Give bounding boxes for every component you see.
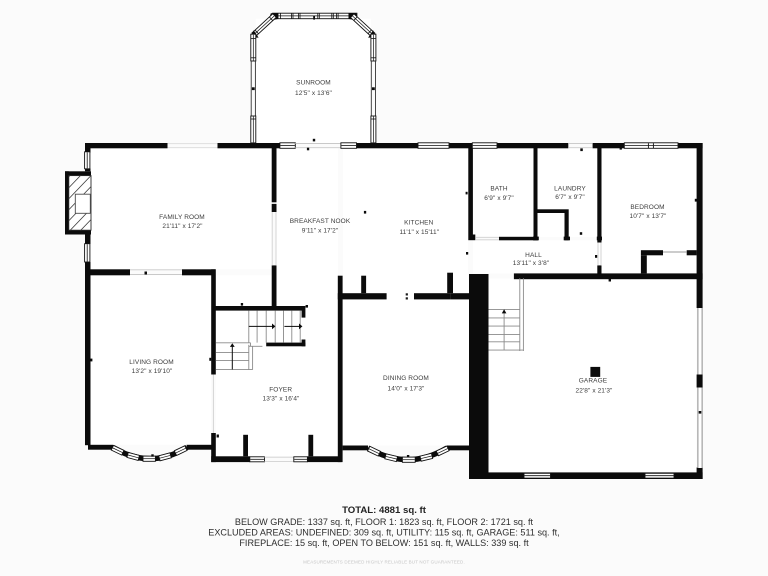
svg-text:DINING ROOM: DINING ROOM [383,375,429,382]
svg-text:FOYER: FOYER [269,387,292,394]
svg-text:TOTAL: 4881 sq. ft: TOTAL: 4881 sq. ft [342,505,427,516]
svg-text:GARAGE: GARAGE [579,377,608,384]
svg-text:13'3" x 16'4": 13'3" x 16'4" [263,396,301,403]
svg-text:MEASUREMENTS DEEMED HIGHLY REL: MEASUREMENTS DEEMED HIGHLY RELIABLE BUT … [303,560,465,565]
svg-text:BEDROOM: BEDROOM [630,204,664,211]
svg-text:FAMILY ROOM: FAMILY ROOM [159,214,205,221]
svg-text:6'7" x 9'7": 6'7" x 9'7" [555,194,585,201]
svg-text:6'9" x 9'7": 6'9" x 9'7" [484,195,514,202]
svg-text:HALL: HALL [525,252,542,259]
svg-text:BATH: BATH [490,186,507,193]
svg-text:12'5" x 13'6": 12'5" x 13'6" [295,90,333,97]
svg-text:14'0" x 17'3": 14'0" x 17'3" [388,385,426,392]
svg-text:BELOW GRADE: 1337 sq. ft, FLOO: BELOW GRADE: 1337 sq. ft, FLOOR 1: 1823 … [235,517,534,527]
svg-text:LIVING ROOM: LIVING ROOM [129,359,173,366]
svg-text:FIREPLACE: 15 sq. ft, OPEN TO: FIREPLACE: 15 sq. ft, OPEN TO BELOW: 151… [239,538,529,548]
svg-text:LAUNDRY: LAUNDRY [554,186,586,193]
svg-text:SUNROOM: SUNROOM [296,80,331,87]
svg-text:21'11" x 17'2": 21'11" x 17'2" [162,223,203,230]
svg-text:KITCHEN: KITCHEN [404,220,433,227]
svg-text:10'7" x 13'7": 10'7" x 13'7" [630,213,668,220]
svg-text:11'1" x 15'11": 11'1" x 15'11" [399,229,439,236]
svg-text:9'11" x 17'2": 9'11" x 17'2" [302,228,339,235]
svg-text:BREAKFAST NOOK: BREAKFAST NOOK [290,218,351,225]
svg-text:EXCLUDED AREAS: UNDEFINED: 309: EXCLUDED AREAS: UNDEFINED: 309 sq. ft, U… [208,528,559,538]
svg-text:13'11" x 3'8": 13'11" x 3'8" [513,260,550,267]
svg-text:13'2" x 19'10": 13'2" x 19'10" [132,368,173,375]
svg-text:22'8" x 21'3": 22'8" x 21'3" [576,387,614,394]
